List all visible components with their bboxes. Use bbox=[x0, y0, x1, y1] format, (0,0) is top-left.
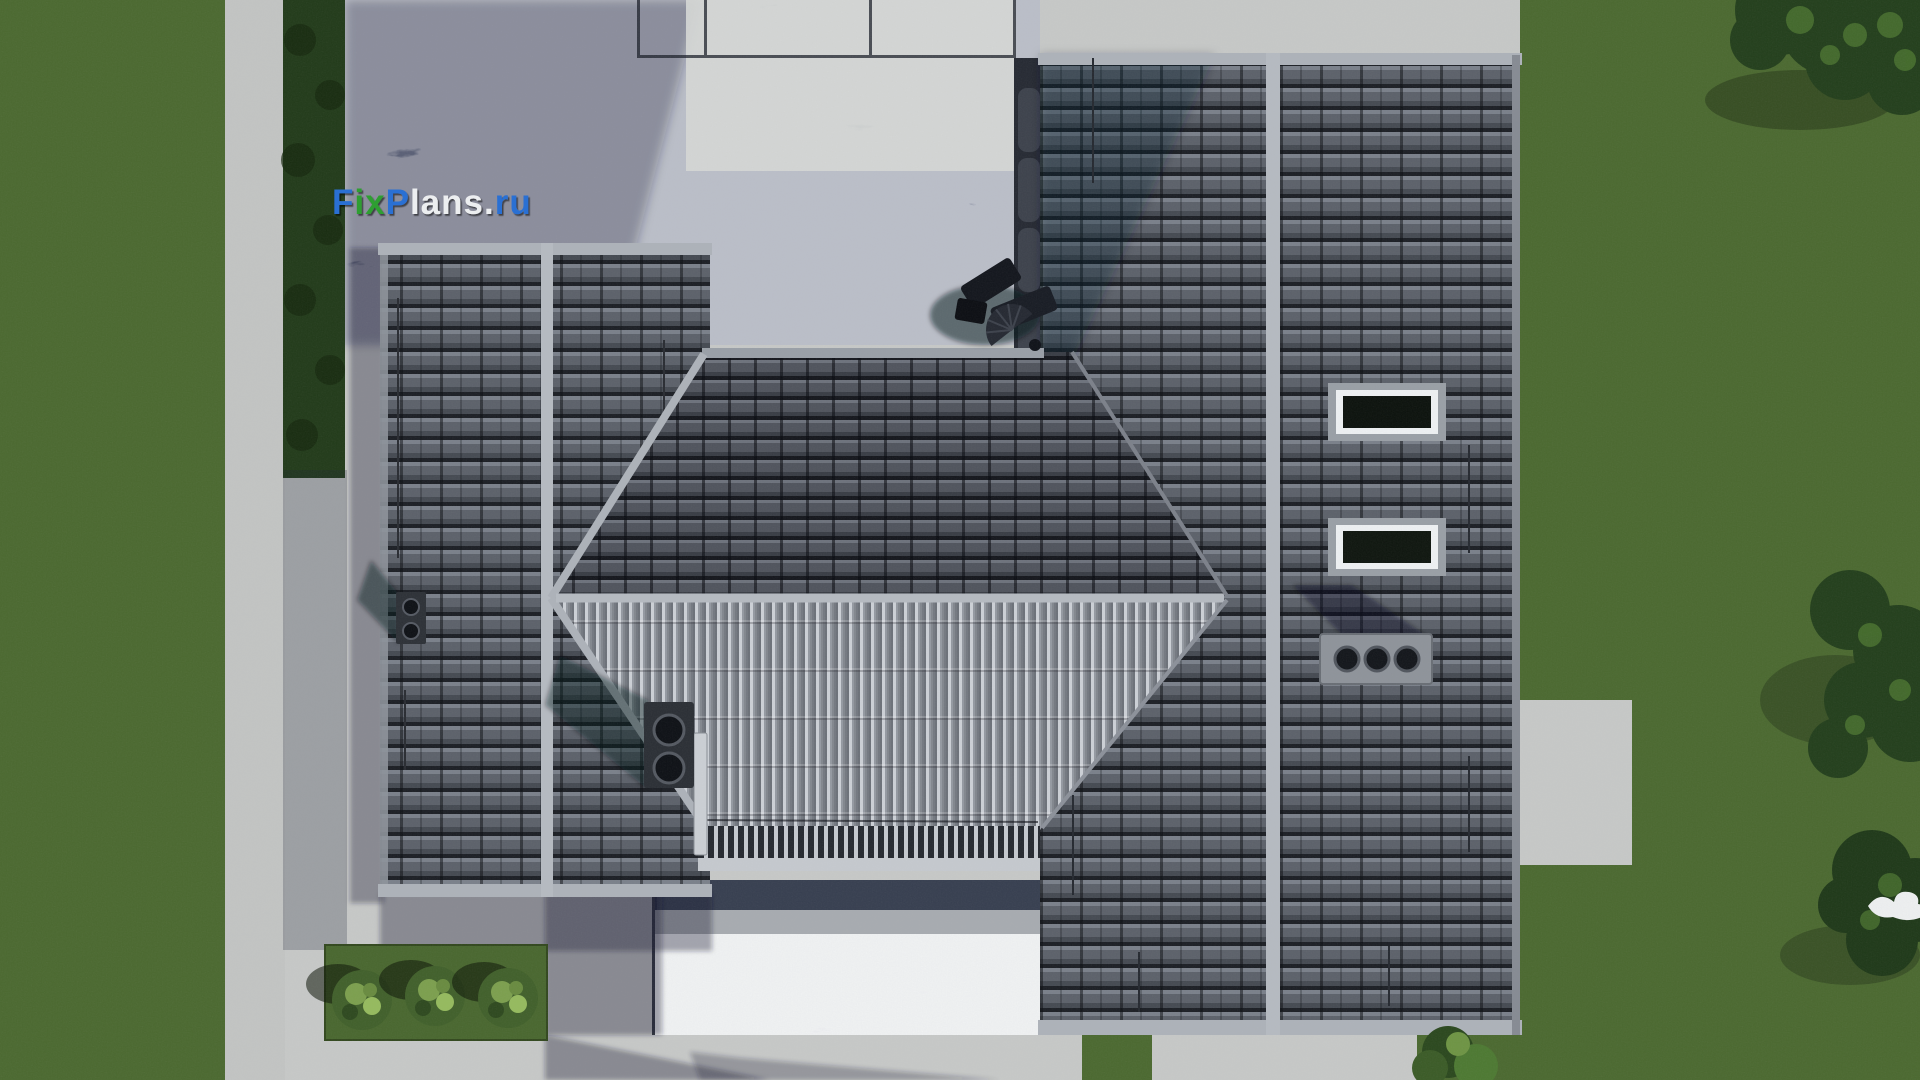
film-grain bbox=[0, 0, 1920, 1080]
roof-plan-render: FixPlans.ru bbox=[0, 0, 1920, 1080]
watermark-dot: . bbox=[484, 183, 495, 222]
watermark-ix: ix bbox=[354, 183, 385, 222]
scene-canvas: FixPlans.ru bbox=[0, 0, 1920, 1080]
watermark: FixPlans.ru bbox=[332, 183, 532, 222]
svg-text:FixPlans.ru: FixPlans.ru bbox=[332, 183, 532, 222]
watermark-f: F bbox=[332, 183, 354, 222]
watermark-lans: lans bbox=[410, 183, 484, 222]
watermark-p: P bbox=[386, 183, 410, 222]
watermark-ru: ru bbox=[495, 183, 532, 222]
